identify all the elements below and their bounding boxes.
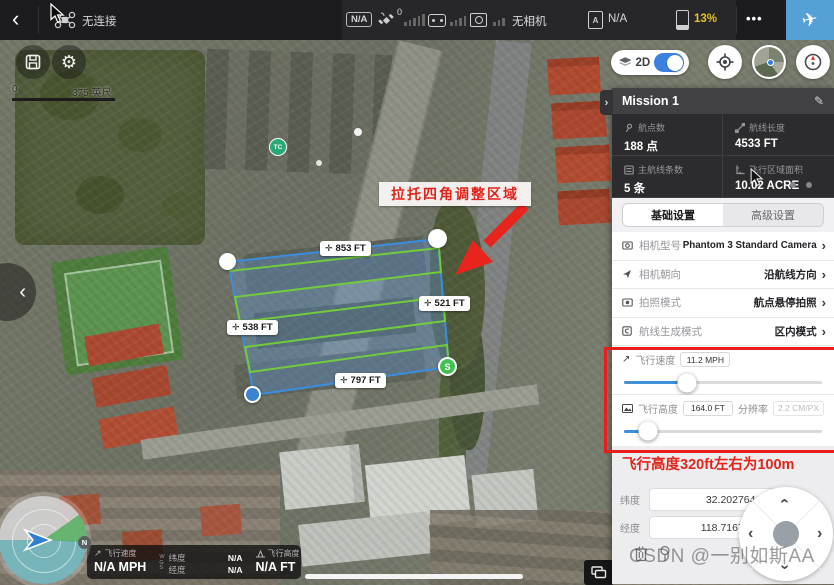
- setting-camera-heading[interactable]: 相机朝向 沿航线方向 ›: [612, 261, 834, 290]
- altitude-icon: [256, 550, 265, 558]
- telemetry-coords: WGS 纬度N/A 经度N/A: [152, 545, 248, 579]
- telemetry-bar: ↗飞行速度 N/A MPH WGS 纬度N/A 经度N/A 飞行高度 N/A F…: [87, 545, 301, 579]
- attitude-compass-widget[interactable]: [0, 496, 87, 584]
- map-layer-button[interactable]: [584, 560, 614, 585]
- tab-advanced-settings[interactable]: 高级设置: [723, 204, 823, 226]
- edge-distance-left: ✛ 538 FT: [227, 320, 278, 335]
- speed-slider-thumb[interactable]: [678, 373, 697, 392]
- top-status-bar: ‹ 无连接 N/A 0 无相机 A N/A 13% ••• ✈: [0, 0, 834, 40]
- wgs-label: WGS: [159, 555, 164, 572]
- heading-icon: [622, 269, 632, 279]
- app-root: S ✛ 853 FT ✛ 521 FT ✛ 538 FT ✛ 797 FT 拉托…: [0, 0, 834, 585]
- stat-area: 飞行区域面积 10.02 ACRE: [723, 156, 834, 198]
- latitude-label: 纬度: [620, 492, 644, 507]
- chevron-right-icon: ›: [605, 97, 609, 109]
- start-point-marker[interactable]: S: [438, 357, 457, 376]
- watermark: CSDN @一别如斯AA: [629, 541, 815, 568]
- north-badge: N: [78, 536, 91, 549]
- panel-collapse-tab[interactable]: ›: [600, 90, 613, 115]
- altitude-value-box[interactable]: 164.0 FT: [683, 401, 733, 416]
- altitude-photo-icon: [622, 404, 633, 413]
- edge-distance-bottom: ✛ 797 FT: [335, 373, 386, 388]
- annotation-arrow-shaft: [487, 206, 525, 244]
- chevron-right-icon: ›: [822, 295, 826, 310]
- checklist-value: N/A: [608, 13, 627, 25]
- move-icon: ✛: [232, 322, 240, 333]
- chevron-right-icon: ›: [822, 267, 826, 282]
- edge-distance-right: ✛ 521 FT: [419, 296, 470, 311]
- corner-handle-topright[interactable]: [428, 229, 447, 248]
- setting-photo-mode[interactable]: 拍照模式 航点悬停拍照 ›: [612, 289, 834, 318]
- chevron-right-icon: ›: [822, 238, 826, 253]
- camera-model-icon: [622, 241, 633, 250]
- mission-title: Mission 1: [622, 94, 814, 108]
- satellite-icon: [378, 12, 394, 28]
- altitude-slider-thumb[interactable]: [638, 422, 657, 441]
- rc-signal-bars: [450, 14, 466, 26]
- camera-signal-bars: [493, 14, 505, 26]
- home-indicator: [305, 574, 523, 579]
- aircraft-arrow-icon: [23, 528, 53, 552]
- speed-value-box[interactable]: 11.2 MPH: [680, 352, 730, 367]
- altitude-slider[interactable]: [624, 430, 822, 433]
- area-icon: [735, 165, 745, 175]
- chevron-right-icon: ›: [822, 324, 826, 339]
- connection-status: 无连接: [82, 13, 117, 29]
- speed-icon: ↗: [94, 548, 102, 559]
- settings-tabs: 基础设置 高级设置: [612, 198, 834, 232]
- dpad-left-button[interactable]: ‹: [748, 526, 753, 542]
- mission-stats: 航点数 188 点 航线长度 4533 FT 主航线条数 5 条 飞行区域面积 …: [612, 114, 834, 198]
- route-length-icon: [735, 123, 745, 133]
- edge-distance-top: ✛ 853 FT: [320, 241, 371, 256]
- stat-waypoints: 航点数 188 点: [612, 114, 723, 156]
- drone-icon: [54, 11, 76, 29]
- edit-mission-icon[interactable]: ✎: [814, 94, 824, 108]
- stat-route-length: 航线长度 4533 FT: [723, 114, 834, 156]
- tab-basic-settings[interactable]: 基础设置: [623, 204, 723, 226]
- altitude-slider-row: 飞行高度 164.0 FT 分辨率 2.2 CM/PX: [612, 395, 834, 447]
- move-icon: ✛: [340, 375, 348, 386]
- dpad-up-button[interactable]: ›: [777, 498, 793, 503]
- battery-percent: 13%: [694, 13, 717, 25]
- corner-handle-topleft[interactable]: [219, 253, 236, 270]
- setting-route-mode[interactable]: 航线生成模式 区内模式 ›: [612, 318, 834, 347]
- remote-controller-icon: [428, 14, 446, 27]
- telemetry-altitude: 飞行高度 N/A FT: [249, 545, 306, 579]
- camera-icon: [470, 13, 487, 27]
- route-mode-icon: [622, 326, 632, 336]
- longitude-label: 经度: [620, 520, 644, 535]
- survey-polygon: [228, 239, 449, 395]
- checklist-icon[interactable]: A: [588, 11, 603, 29]
- airplane-icon: ✈: [800, 9, 820, 31]
- move-icon: ✛: [424, 298, 432, 309]
- dpad-right-button[interactable]: ›: [817, 526, 822, 542]
- setting-camera-model[interactable]: 相机型号 Phantom 3 Standard Camera ›: [612, 232, 834, 261]
- map-poi-marker[interactable]: TC: [269, 138, 287, 156]
- start-point-label: S: [444, 362, 450, 372]
- stats-page-dots[interactable]: [790, 182, 812, 188]
- photo-mode-icon: [622, 298, 633, 307]
- speed-icon: ↗: [622, 354, 630, 365]
- annotation-arrow-head: [455, 240, 493, 275]
- telemetry-speed: ↗飞行速度 N/A MPH: [87, 545, 152, 579]
- waypoint-icon: [624, 123, 634, 133]
- gps-signal-bars: [404, 14, 425, 26]
- more-menu-button[interactable]: •••: [746, 11, 763, 26]
- pin-icon: [659, 545, 671, 562]
- trash-icon: [634, 545, 648, 562]
- satellite-count: 0: [397, 7, 402, 17]
- back-button[interactable]: ‹: [12, 6, 19, 32]
- mainlines-icon: [624, 165, 634, 175]
- altitude-note: 飞行高度320ft左右为100m: [612, 446, 834, 480]
- mission-header: Mission 1 ✎: [612, 88, 834, 114]
- battery-icon: [676, 10, 689, 30]
- gps-mode-badge: N/A: [346, 12, 372, 27]
- resolution-value-box: 2.2 CM/PX: [773, 401, 824, 416]
- stat-mainlines: 主航线条数 5 条: [612, 156, 723, 198]
- speed-slider-row: ↗ 飞行速度 11.2 MPH: [612, 346, 834, 395]
- annotation-callout: 拉托四角调整区域: [379, 182, 531, 206]
- speed-slider[interactable]: [624, 381, 822, 384]
- layers-stack-icon: [591, 566, 607, 579]
- corner-handle-bottomleft[interactable]: [244, 386, 261, 403]
- move-icon: ✛: [325, 243, 333, 254]
- takeoff-button[interactable]: ✈: [786, 0, 834, 40]
- camera-status: 无相机: [512, 13, 547, 29]
